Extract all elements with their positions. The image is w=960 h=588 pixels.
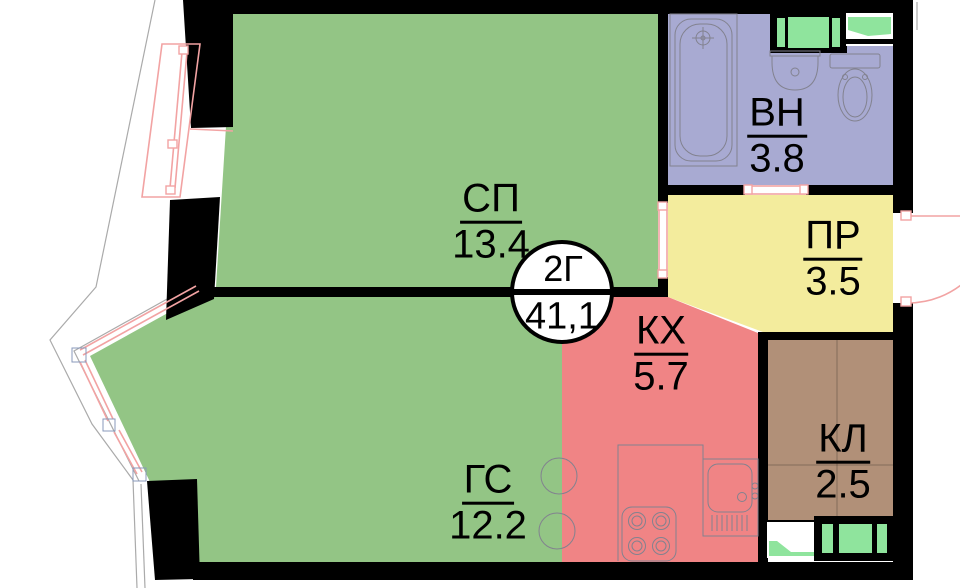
bedroom-door-opening xyxy=(658,202,667,278)
room-name: КХ xyxy=(634,311,688,356)
apartment-type-label: 2Г xyxy=(543,248,583,290)
room-area: 12.2 xyxy=(449,506,527,547)
room-name: ВН xyxy=(747,93,807,138)
vent-shaft-bottom xyxy=(767,516,893,561)
total-area-value: 41,1 xyxy=(525,296,599,339)
room-name: СП xyxy=(460,179,522,224)
room-label-vn: ВН 3.8 xyxy=(747,93,807,180)
room-area: 13.4 xyxy=(452,225,530,266)
room-sp-area xyxy=(216,14,658,287)
room-label-pr: ПР 3.5 xyxy=(803,216,862,303)
floor-plan: СП 13.4 ВН 3.8 ПР 3.5 КХ 5.7 ГС 12.2 КЛ … xyxy=(0,0,960,588)
room-name: ГС xyxy=(462,460,515,505)
bathroom-door-opening xyxy=(744,185,808,194)
room-label-kl: КЛ 2.5 xyxy=(815,419,871,506)
room-area: 2.5 xyxy=(815,465,871,506)
room-label-gs: ГС 12.2 xyxy=(449,460,527,547)
room-name: ПР xyxy=(803,216,862,261)
room-area: 5.7 xyxy=(633,357,689,398)
room-area: 3.5 xyxy=(803,262,862,303)
room-area: 3.8 xyxy=(747,139,807,180)
entrance-door xyxy=(901,211,960,306)
room-label-sp: СП 13.4 xyxy=(452,179,530,266)
room-label-kh: КХ 5.7 xyxy=(633,311,689,398)
room-name: КЛ xyxy=(816,419,870,464)
